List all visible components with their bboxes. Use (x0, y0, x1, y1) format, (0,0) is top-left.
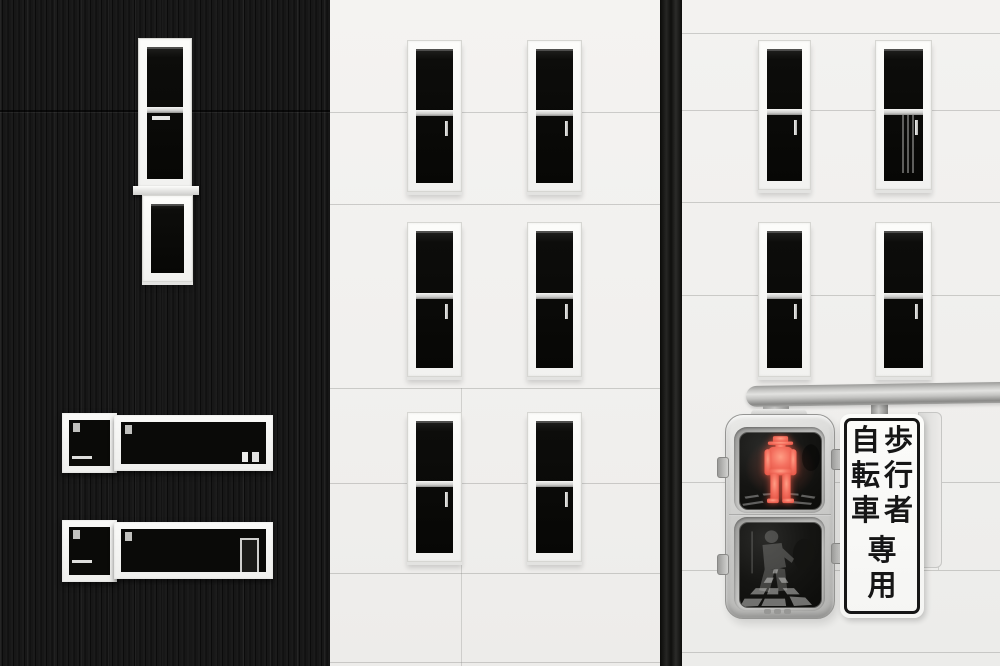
window (527, 40, 582, 192)
window-sticker (125, 532, 132, 541)
sign-char: 用 (867, 570, 898, 603)
window (527, 222, 582, 377)
window-glass (147, 47, 183, 179)
signal-lens-stop (734, 427, 825, 513)
window (407, 412, 462, 562)
window-sticker (73, 423, 80, 432)
vent-dot (774, 609, 781, 614)
interior-door-frame (240, 538, 259, 572)
window (527, 412, 582, 562)
window (875, 222, 932, 377)
sign-border: 自 転 車 歩 行 者 専 用 (844, 418, 920, 614)
sign-char: 者 (883, 495, 914, 528)
regulatory-sign: 自 転 車 歩 行 者 専 用 (840, 414, 924, 618)
window-glass (69, 420, 110, 466)
window-small-lower-band (62, 520, 117, 582)
facade-panel-seam (330, 662, 660, 663)
window-shelf (72, 456, 92, 459)
window-shelf (72, 560, 92, 563)
facade-panel-seam (330, 388, 660, 389)
facade-panel-seam (682, 652, 1000, 653)
window-tall-lower (142, 195, 193, 282)
window-long-upper-band (114, 415, 273, 471)
photo-scene: 自 転 車 歩 行 者 専 用 (0, 0, 1000, 666)
window-mullion (147, 107, 183, 113)
hinge (717, 457, 729, 478)
sign-column-only: 専 用 (867, 535, 898, 603)
window-handle (152, 116, 170, 120)
window-tall-upper (138, 38, 192, 188)
window-glass (121, 422, 266, 464)
sign-column-bicycle: 自 転 車 (850, 425, 881, 528)
facade-panel-seam (682, 295, 1000, 296)
vent-dot (784, 609, 791, 614)
signal-lens-walk (734, 517, 825, 611)
red-man-icon (739, 432, 822, 510)
window-sticker (125, 425, 132, 434)
pedestrian-signal (725, 414, 835, 619)
windowsill-cup (242, 452, 248, 462)
window-glass (121, 529, 266, 572)
window-sill (133, 186, 199, 195)
sign-char: 転 (850, 460, 881, 493)
sign-char: 自 (850, 425, 881, 458)
facade-panel-seam (330, 573, 660, 574)
sign-char: 車 (850, 495, 881, 528)
sign-char: 専 (867, 535, 898, 568)
sign-char: 行 (883, 460, 914, 493)
window-glass (69, 527, 110, 575)
signal-pole (746, 382, 1000, 407)
window-small-upper-band (62, 413, 117, 473)
housing-seam (729, 514, 831, 516)
window (407, 40, 462, 192)
window-glass (151, 204, 184, 273)
facade-panel-seam (682, 202, 1000, 203)
building-gap (660, 0, 682, 666)
facade-panel-seam (330, 483, 660, 484)
sign-column-pedestrian: 歩 行 者 (883, 425, 914, 528)
facade-panel-seam (330, 112, 660, 113)
window-sticker (73, 530, 80, 539)
glass-reflection (902, 115, 914, 173)
walk-man-unlit-icon (739, 522, 822, 608)
window (407, 222, 462, 377)
hinge (717, 554, 729, 575)
window (758, 222, 811, 377)
vent-dot (764, 609, 771, 614)
window-long-lower-band (114, 522, 273, 579)
window (758, 40, 811, 190)
facade-panel-seam (682, 33, 1000, 34)
facade-panel-seam (682, 110, 1000, 111)
window (875, 40, 932, 190)
facade-panel-seam (330, 204, 660, 205)
sign-char: 歩 (883, 425, 914, 458)
white-facade-middle (330, 0, 660, 666)
windowsill-cup (252, 452, 259, 462)
